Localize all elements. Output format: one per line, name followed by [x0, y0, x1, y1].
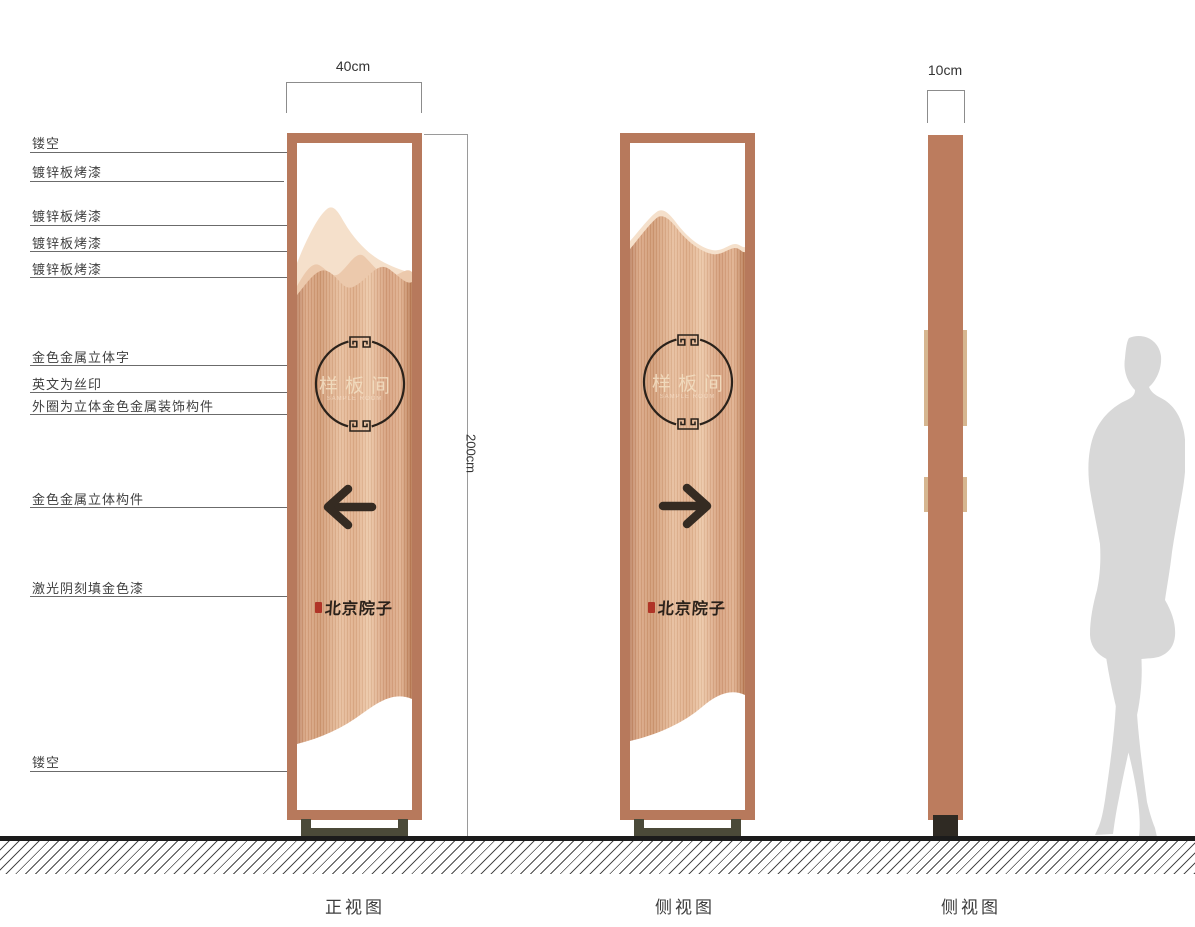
caption-side-view: 侧视图 — [620, 893, 750, 918]
sign-front-panel: 样板间 SAMPLE ROOM 北京院子 — [297, 143, 412, 810]
annotation-leader-line — [30, 277, 291, 278]
dimension-bracket-width — [286, 82, 422, 113]
profile-base-foot — [933, 815, 958, 838]
mountain-graphic — [630, 143, 745, 810]
annotation-leader-line — [30, 152, 307, 153]
annotation-label: 外圈为立体金色金属装饰构件 — [32, 396, 214, 415]
caption-profile-view: 侧视图 — [906, 893, 1036, 918]
annotation-label: 镂空 — [32, 133, 60, 152]
annotation-label: 镀锌板烤漆 — [32, 233, 102, 252]
annotation-leader-line — [30, 596, 287, 597]
annotation-label: 英文为丝印 — [32, 374, 102, 393]
caption-front-view: 正视图 — [290, 893, 420, 918]
circle-title: 样板间 — [297, 371, 412, 398]
dimension-label-height: 200cm — [464, 424, 479, 484]
annotation-leader-line — [30, 225, 322, 226]
dimension-tick — [424, 134, 467, 135]
annotation-leader-line — [30, 251, 296, 252]
annotation-leader-line — [30, 414, 318, 415]
annotation-label: 镂空 — [32, 752, 60, 771]
annotation-label: 镀锌板烤漆 — [32, 206, 102, 225]
annotation-label: 金色金属立体构件 — [32, 489, 144, 508]
annotation-label: 镀锌板烤漆 — [32, 162, 102, 181]
mountain-graphic — [297, 143, 412, 810]
annotation-label: 激光阴刻填金色漆 — [32, 578, 144, 597]
annotation-label: 金色金属立体字 — [32, 347, 130, 366]
signage-construction-drawing: 镂空 镀锌板烤漆 镀锌板烤漆 镀锌板烤漆 镀锌板烤漆 金色金属立体字 英文为丝印… — [0, 0, 1195, 927]
circle-subtitle: SAMPLE ROOM — [297, 396, 412, 402]
seal-stamp-icon — [648, 602, 655, 613]
right-arrow-icon — [657, 483, 721, 529]
brand-logo: 北京院子 — [630, 595, 745, 619]
person-silhouette — [1045, 332, 1185, 842]
dimension-label-width: 40cm — [313, 58, 393, 74]
annotation-leader-line — [30, 507, 320, 508]
dimension-line-height — [467, 134, 468, 836]
ground-hatch — [0, 841, 1195, 874]
profile-column — [928, 135, 963, 820]
circle-title: 样板间 — [630, 369, 745, 396]
annotation-label: 镀锌板烤漆 — [32, 259, 102, 278]
annotation-leader-line — [30, 181, 284, 182]
dimension-label-profile-width: 10cm — [905, 62, 985, 78]
brand-logo: 北京院子 — [297, 595, 412, 619]
left-arrow-icon — [314, 484, 378, 530]
seal-stamp-icon — [315, 602, 322, 613]
annotation-leader-line — [30, 771, 303, 772]
dimension-bracket-profile-width — [927, 90, 965, 123]
sign-side-panel: 样板间 SAMPLE ROOM 北京院子 — [630, 143, 745, 810]
logo-text: 北京院子 — [658, 595, 728, 619]
circle-subtitle: SAMPLE ROOM — [630, 394, 745, 400]
logo-text: 北京院子 — [325, 595, 395, 619]
